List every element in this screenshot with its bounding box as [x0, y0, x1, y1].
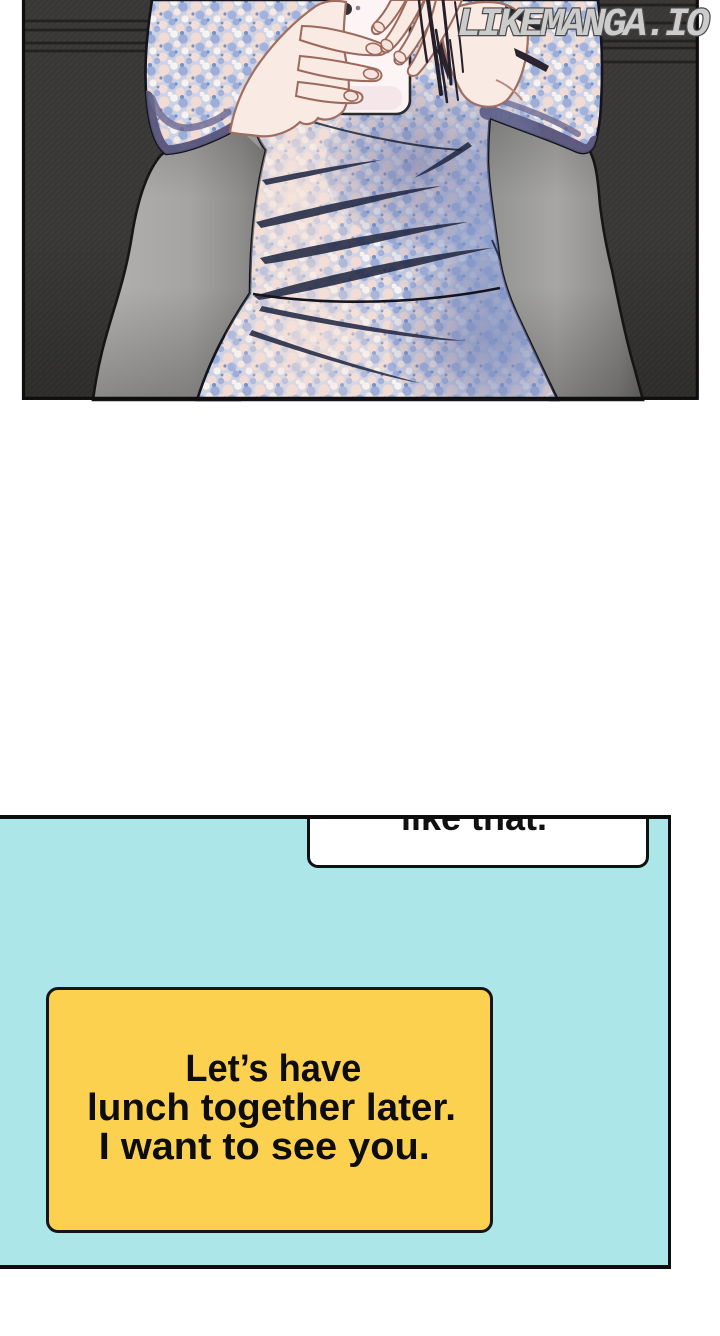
- svg-text:LIKEMANGA.IO: LIKEMANGA.IO: [457, 3, 710, 48]
